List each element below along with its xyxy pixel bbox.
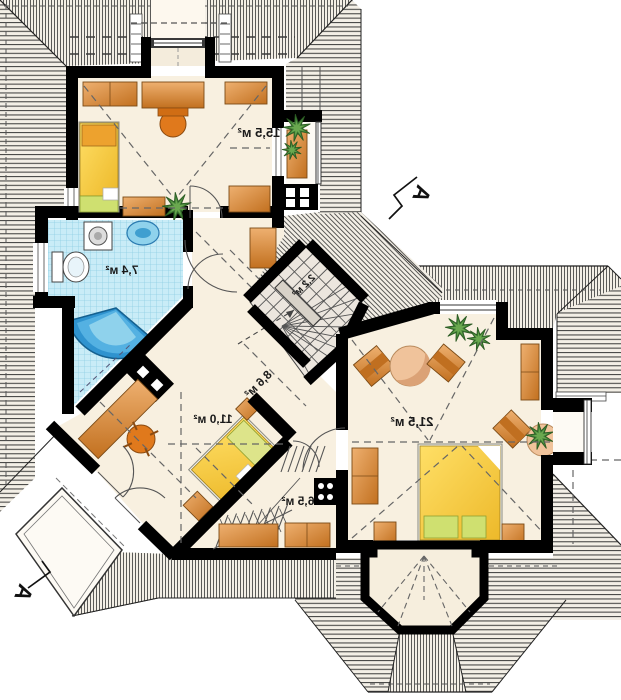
svg-text:6,5 м²: 6,5 м² <box>282 494 315 508</box>
svg-text:21,5 м²: 21,5 м² <box>390 414 434 429</box>
svg-text:7,4 м²: 7,4 м² <box>106 263 139 277</box>
svg-text:15,5 м²: 15,5 м² <box>237 125 281 140</box>
svg-text:11,0 м²: 11,0 м² <box>194 412 233 426</box>
